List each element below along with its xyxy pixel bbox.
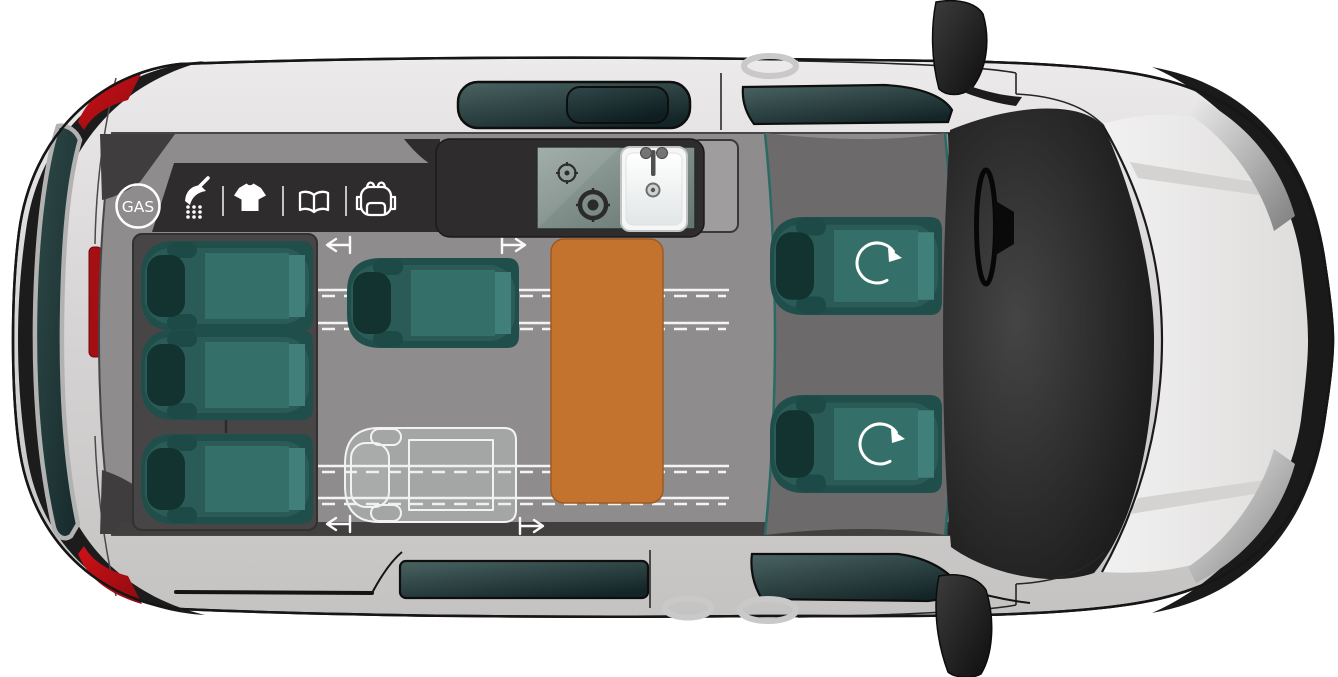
amenity-band (152, 163, 440, 232)
dining-table (551, 239, 663, 503)
cab-door-window-top (743, 85, 952, 124)
sink (621, 147, 687, 231)
faucet-knob-left (641, 148, 652, 159)
windshield-dash-area (943, 109, 1154, 580)
rocker-trim-line (176, 592, 372, 593)
sliding-seat[interactable] (347, 258, 519, 348)
optional-seat-outline[interactable] (345, 428, 516, 522)
bench-seat-1 (141, 241, 313, 331)
gas-badge-label: GAS (122, 198, 154, 216)
faucet-spout (651, 150, 656, 176)
sliding-window-vent-top (567, 87, 668, 123)
sliding-door-window-bottom (400, 561, 648, 598)
bench-seat-3 (141, 434, 313, 524)
side-mirror-bottom (936, 575, 992, 677)
swivel-seat-driver[interactable] (770, 395, 942, 493)
bench-seat-2 (141, 330, 313, 420)
faucet-knob-right (657, 148, 668, 159)
campervan-floorplan: GAS (0, 0, 1338, 677)
